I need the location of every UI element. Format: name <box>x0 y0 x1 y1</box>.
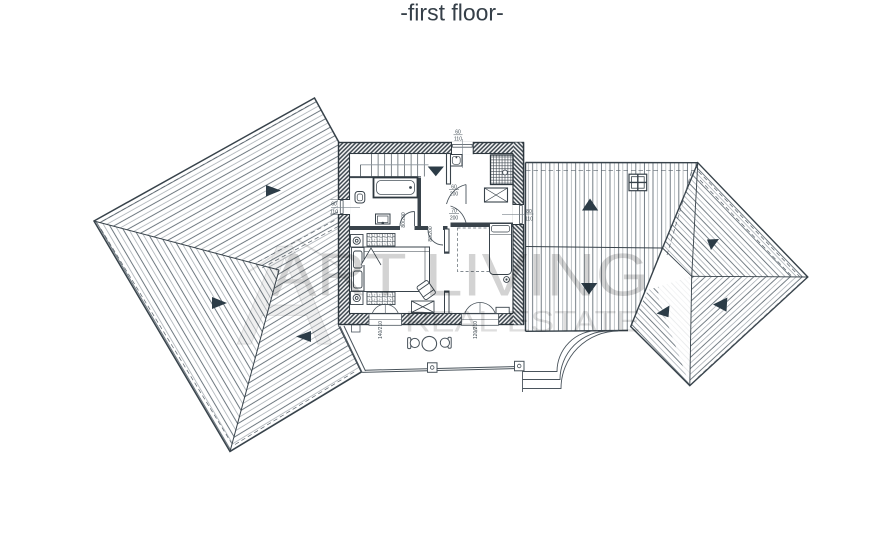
svg-text:110: 110 <box>525 217 533 223</box>
svg-text:140/210: 140/210 <box>378 321 384 339</box>
svg-text:60: 60 <box>331 202 337 208</box>
svg-text:110: 110 <box>454 136 462 142</box>
svg-text:REAL ESTATE: REAL ESTATE <box>405 306 640 339</box>
svg-text:80/200: 80/200 <box>401 212 407 228</box>
svg-text:110: 110 <box>330 209 338 215</box>
svg-text:-first floor-: -first floor- <box>400 0 504 26</box>
svg-text:80/200: 80/200 <box>428 226 434 242</box>
svg-text:200: 200 <box>450 192 459 198</box>
svg-text:200: 200 <box>450 216 459 222</box>
svg-text:ART LIVING: ART LIVING <box>271 242 649 309</box>
